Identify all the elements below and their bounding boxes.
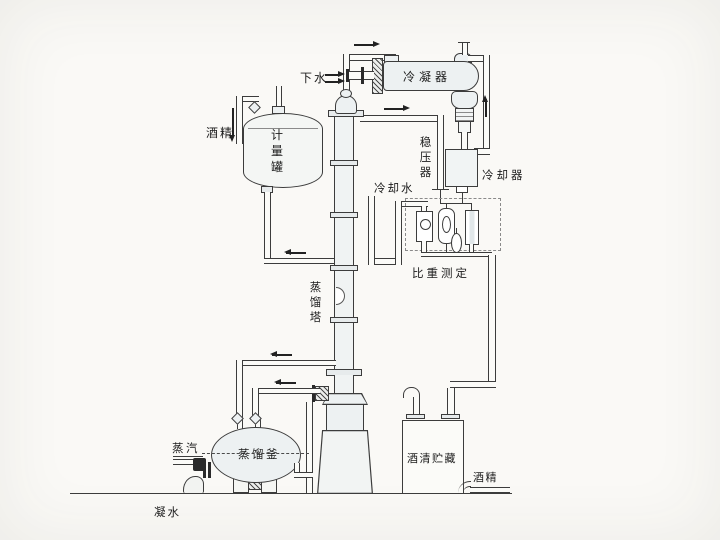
pipe-alcohol-feed-v [236, 96, 243, 144]
label-condenser: 冷凝器 [403, 68, 451, 85]
condenser-stub-flange [361, 67, 364, 84]
condenser-vent-stub [462, 43, 468, 55]
sight-glass-left-window [420, 219, 431, 230]
steam-label-underline [173, 456, 203, 457]
column-dome-ball [340, 89, 352, 98]
steam-trap-boot [183, 476, 204, 493]
collector-pipe [421, 252, 492, 257]
label-spirit-storage: 酒清贮藏 [407, 450, 457, 466]
label-distillation-kettle: 蒸馏釜 [238, 446, 280, 462]
pipe-stabilizer-top [360, 115, 444, 122]
pipe-reflux-upper-h [240, 360, 336, 366]
cooler-vessel [445, 149, 478, 187]
pipe-column-base-drain [306, 402, 313, 493]
steam-flange-bar-1 [203, 462, 206, 478]
column-neck [334, 375, 354, 394]
label-steam: 蒸汽 [172, 440, 200, 456]
column-flange-4 [330, 317, 358, 323]
label-condensate: 凝水 [154, 504, 181, 520]
storage-inlet-flange [441, 414, 460, 419]
pressure-stabilizer-tube [437, 115, 444, 189]
meter-tank-vent [276, 86, 282, 107]
reducer-segment-2 [455, 108, 474, 122]
label-distillation-column: 蒸馏塔 [309, 281, 322, 327]
reducer-segment-1 [451, 91, 478, 109]
column-flange-3 [330, 265, 358, 271]
kettle-right-elbow-h [294, 472, 313, 478]
label-gravity-measurement: 比重测定 [412, 265, 470, 281]
column-base-cylinder [326, 404, 364, 431]
pipe-storage-drop [447, 388, 455, 416]
label-alcohol-feed: 酒精 [206, 124, 234, 141]
label-alcohol-out: 酒精 [473, 469, 498, 485]
distillation-column-body [334, 112, 354, 370]
pipe-cooling-down [368, 196, 375, 265]
label-cooling-water: 冷却水 [374, 180, 415, 196]
pipe-storage-bend [450, 381, 496, 388]
label-down-water: 下水 [300, 69, 328, 86]
pipe-alcohol-out [470, 487, 510, 493]
condenser-stub-end-tick [346, 69, 349, 82]
meter-tank-nozzle-left [248, 101, 261, 114]
column-flange-2 [330, 212, 358, 218]
hydrometer-bulb [451, 233, 462, 253]
label-pressure-stabilizer: 稳压器 [419, 136, 432, 182]
label-metering-tank: 计量罐 [270, 128, 284, 175]
label-cooler: 冷却器 [482, 167, 526, 183]
sight-glass-middle-window [442, 216, 451, 233]
column-flange-1 [330, 160, 358, 166]
pipe-reflux-lower-h [256, 388, 320, 394]
pipe-meter-outlet-v [264, 192, 271, 262]
steam-flange-bar-2 [208, 462, 211, 478]
column-skirt [317, 430, 373, 494]
process-diagram: 冷凝器 下水 冷却器 稳压器 冷却水 [0, 0, 720, 540]
pipe-cooling-up [395, 201, 402, 265]
gooseneck-flange [406, 414, 425, 419]
hydrometer-cylinder [465, 210, 479, 245]
pipe-storage-down [488, 255, 496, 387]
pipe-meter-feed-h [264, 258, 336, 264]
